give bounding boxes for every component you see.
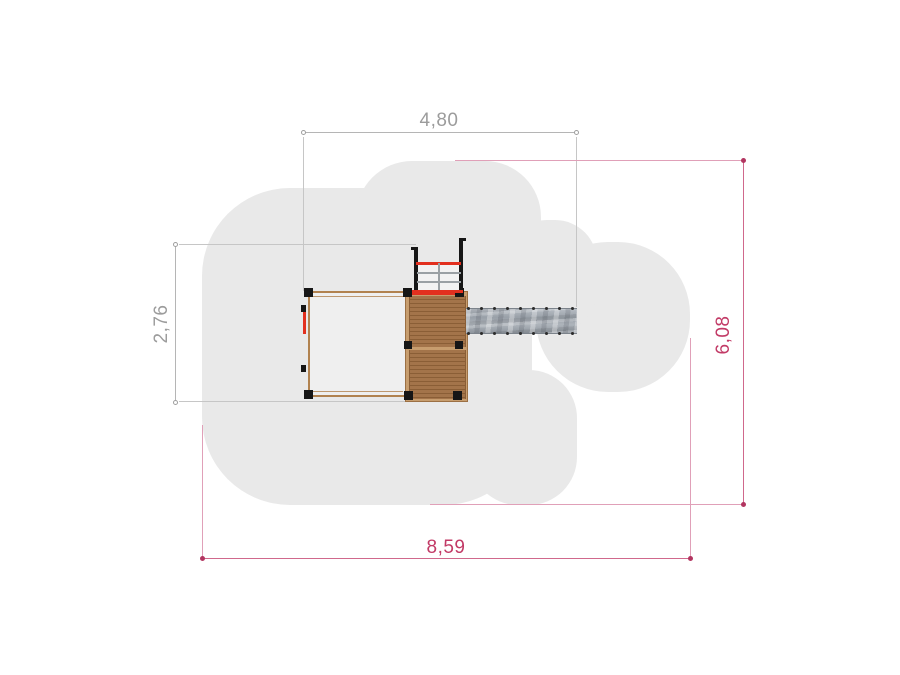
post [301,365,306,372]
dimension-endpoint [688,556,693,561]
dimension-endpoint [173,400,178,405]
extension-line [303,137,304,291]
dimension-label-right: 6,08 [713,300,735,370]
bolt-icon [558,307,561,310]
ladder-bottom-bar [413,290,463,293]
frame-beam-line [312,391,403,392]
post [403,288,412,297]
dimension-line-right [743,160,744,505]
bolt-icon [571,307,574,310]
ladder-rail-hook [462,238,466,241]
bolt-icon [480,307,483,310]
ladder-rail-hook [411,247,415,250]
extension-line [202,425,203,558]
bolt-icon [493,307,496,310]
extension-line [179,244,416,245]
dimension-label-top: 4,80 [404,110,474,132]
plan-drawing-canvas: 4,80 2,76 6,08 8,59 [0,0,900,675]
dimension-line-top [303,132,577,133]
extension-line [690,338,691,558]
post [301,305,306,312]
dimension-endpoint [173,242,178,247]
post [453,391,462,400]
post [304,390,313,399]
dimension-label-left: 2,76 [151,289,173,359]
dimension-label-bottom: 8,59 [411,537,481,559]
bolt-icon [519,307,522,310]
bolt-icon [558,332,561,335]
safety-area-lobe [470,370,577,505]
dimension-endpoint [574,130,579,135]
ladder-divider [438,263,440,291]
post [455,341,463,349]
dimension-endpoint [741,502,746,507]
ladder-rail [414,247,418,292]
bolt-icon [519,332,522,335]
bolt-icon [545,332,548,335]
bolt-icon [506,332,509,335]
deck-planks-upper [409,296,466,347]
dimension-endpoint [200,556,205,561]
bolt-icon [532,332,535,335]
extension-line [430,504,743,505]
platform-frame [308,291,407,397]
post [404,391,413,400]
bolt-icon [532,307,535,310]
climbing-wall-marker [303,312,306,334]
post [404,341,412,349]
bolt-icon [467,332,470,335]
post [304,288,313,297]
bolt-icon [480,332,483,335]
extension-line [179,401,413,402]
dimension-endpoint [301,130,306,135]
dimension-endpoint [741,158,746,163]
extension-line [576,137,577,307]
bolt-icon [571,332,574,335]
frame-beam-line [312,296,403,297]
slide [466,308,577,334]
extension-line [455,160,743,161]
bolt-icon [467,307,470,310]
bolt-icon [545,307,548,310]
dimension-line-left [175,244,176,402]
ladder-rail [459,238,463,292]
bolt-icon [493,332,496,335]
bolt-icon [506,307,509,310]
